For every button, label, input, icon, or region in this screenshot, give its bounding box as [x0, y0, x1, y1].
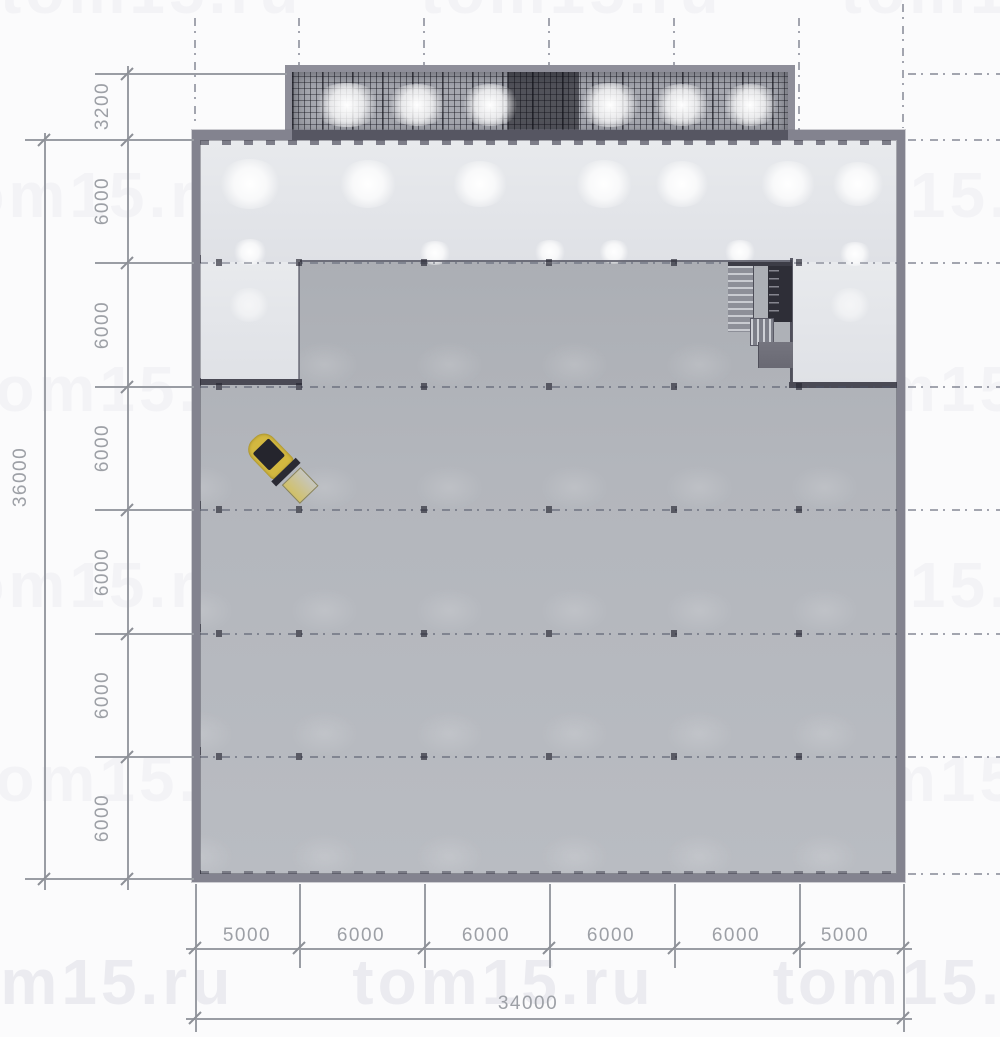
watermark-text: tom15.ru — [0, 945, 234, 1019]
watermark-text: tom15.ru — [841, 0, 1000, 28]
dim-label-left-bay: 6000 — [92, 424, 114, 472]
extension-line — [195, 884, 197, 1032]
dim-label-left-bay: 6000 — [92, 301, 114, 349]
watermark-text: tom15.ru — [773, 945, 1000, 1019]
grid-row-line — [908, 756, 1000, 758]
extension-line — [799, 884, 801, 968]
canopy-light-glow — [577, 83, 643, 127]
dim-label-bottom-overall: 34000 — [498, 993, 558, 1015]
dimension-line-left-overall — [44, 133, 46, 890]
dim-label-left-overall: 36000 — [10, 447, 32, 507]
extension-line — [95, 509, 194, 511]
grid-row-line — [908, 509, 1000, 511]
watermark-row: tom15.rutom15.rutom15.ru — [0, 0, 1000, 28]
dim-label-left-bay: 6000 — [92, 671, 114, 719]
dim-label-bottom-bay: 6000 — [462, 925, 510, 947]
canopy-light-glow — [312, 83, 382, 127]
dim-label-canopy-depth: 3200 — [92, 82, 114, 130]
extension-line — [95, 386, 194, 388]
watermark-text: tom15.ru — [420, 0, 722, 28]
dimension-line-left-bays — [127, 66, 129, 890]
watermark-text: tom15.ru — [0, 0, 302, 28]
extension-line — [903, 884, 905, 1032]
stair-landing-block — [758, 342, 793, 368]
dim-label-left-bay: 6000 — [92, 548, 114, 596]
extension-line — [25, 139, 194, 141]
canopy-light-glow — [651, 84, 713, 126]
dimension-line-bottom-overall — [186, 1018, 912, 1020]
stair-shaft-treads — [769, 270, 779, 318]
grid-row-line — [908, 262, 1000, 264]
dock-canopy — [285, 65, 795, 140]
dim-label-bottom-bay: 6000 — [712, 925, 760, 947]
floor-plan-canvas: tom15.rutom15.rutom15.ru tom15.rutom15.r… — [0, 0, 1000, 1037]
canopy-light-glow — [385, 84, 449, 126]
extension-line — [674, 884, 676, 968]
grid-row-line — [908, 873, 1000, 875]
canopy-light-glow — [459, 84, 521, 126]
grid-row-line — [908, 139, 1000, 141]
grid-row-line — [908, 633, 1000, 635]
extension-line — [424, 884, 426, 968]
dock-wall-segment — [292, 130, 788, 140]
dim-label-bottom-bay: 5000 — [223, 925, 271, 947]
dim-label-bottom-bay: 6000 — [337, 925, 385, 947]
extension-line — [95, 633, 194, 635]
canopy-light-glow — [720, 84, 780, 126]
dim-label-left-bay: 6000 — [92, 794, 114, 842]
dim-label-bottom-bay: 6000 — [587, 925, 635, 947]
grid-column-line — [902, 4, 904, 128]
extension-line — [299, 884, 301, 968]
dim-label-left-bay: 6000 — [92, 177, 114, 225]
grid-row-line — [908, 73, 1000, 75]
grid-row-line — [908, 386, 1000, 388]
dim-label-bottom-bay: 5000 — [821, 925, 869, 947]
extension-line — [25, 878, 194, 880]
extension-line — [95, 262, 194, 264]
extension-line — [95, 756, 194, 758]
extension-line — [549, 884, 551, 968]
staircase — [728, 262, 792, 368]
